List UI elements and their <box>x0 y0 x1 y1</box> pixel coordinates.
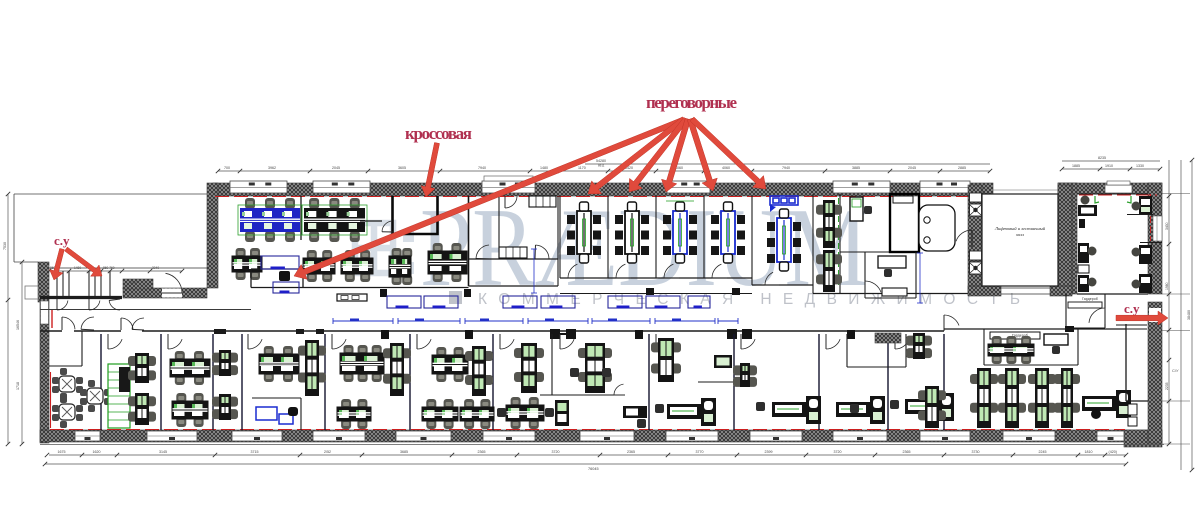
svg-text:1480: 1480 <box>74 266 81 270</box>
svg-text:1330: 1330 <box>1136 164 1144 168</box>
svg-text:3605: 3605 <box>398 166 406 170</box>
svg-text:7940: 7940 <box>478 166 486 170</box>
svg-text:3720: 3720 <box>834 450 842 454</box>
svg-text:2245: 2245 <box>1039 450 1047 454</box>
svg-text:1810: 1810 <box>1085 450 1093 454</box>
svg-text:С/У: С/У <box>1172 368 1179 373</box>
svg-text:(420): (420) <box>1109 450 1117 454</box>
svg-text:2365: 2365 <box>478 450 486 454</box>
svg-text:8911: 8911 <box>598 164 605 168</box>
svg-text:3430: 3430 <box>1165 222 1169 230</box>
svg-text:3145: 3145 <box>159 450 167 454</box>
svg-text:7530: 7530 <box>3 242 7 250</box>
svg-text:1910: 1910 <box>1105 164 1113 168</box>
svg-text:3885: 3885 <box>852 166 860 170</box>
svg-text:3962: 3962 <box>268 166 276 170</box>
svg-text:2365: 2365 <box>627 450 635 454</box>
svg-text:кроссовая: кроссовая <box>405 124 472 143</box>
svg-text:2885: 2885 <box>958 166 966 170</box>
svg-text:16546: 16546 <box>16 320 20 330</box>
svg-text:7940: 7940 <box>782 166 790 170</box>
svg-text:3715: 3715 <box>251 450 259 454</box>
svg-text:1480: 1480 <box>540 166 548 170</box>
svg-text:2399: 2399 <box>765 450 773 454</box>
svg-text:с.у: с.у <box>54 233 70 248</box>
svg-text:с.у: с.у <box>1124 301 1140 316</box>
svg-text:переговорные: переговорные <box>646 93 737 112</box>
svg-text:1620: 1620 <box>93 450 101 454</box>
svg-text:54280: 54280 <box>596 159 606 163</box>
svg-text:38480: 38480 <box>1187 310 1191 320</box>
svg-text:2235: 2235 <box>1165 382 1169 390</box>
svg-text:2045: 2045 <box>332 166 340 170</box>
svg-text:3720: 3720 <box>552 450 560 454</box>
svg-text:8235: 8235 <box>1098 156 1106 160</box>
svg-text:1718: 1718 <box>16 382 20 390</box>
svg-text:Лифтовый и лестничный: Лифтовый и лестничный <box>994 226 1046 231</box>
svg-text:1675: 1675 <box>58 450 66 454</box>
svg-text:3730: 3730 <box>972 450 980 454</box>
svg-text:2/52: 2/52 <box>324 450 331 454</box>
svg-text:3685: 3685 <box>400 450 408 454</box>
svg-text:холл: холл <box>1015 232 1024 237</box>
svg-text:3770: 3770 <box>696 450 704 454</box>
svg-text:3040: 3040 <box>130 281 137 285</box>
svg-text:3040: 3040 <box>152 266 159 270</box>
svg-text:2045: 2045 <box>908 166 916 170</box>
svg-text:4060: 4060 <box>722 166 730 170</box>
svg-text:1885: 1885 <box>1072 164 1080 168</box>
svg-text:Гардероб: Гардероб <box>1082 297 1098 301</box>
svg-text:860 760: 860 760 <box>103 266 115 270</box>
svg-text:76045: 76045 <box>588 467 599 471</box>
svg-text:2365: 2365 <box>903 450 911 454</box>
svg-text:1170: 1170 <box>578 166 586 170</box>
svg-text:1980: 1980 <box>1165 282 1169 290</box>
svg-text:700: 700 <box>224 166 230 170</box>
